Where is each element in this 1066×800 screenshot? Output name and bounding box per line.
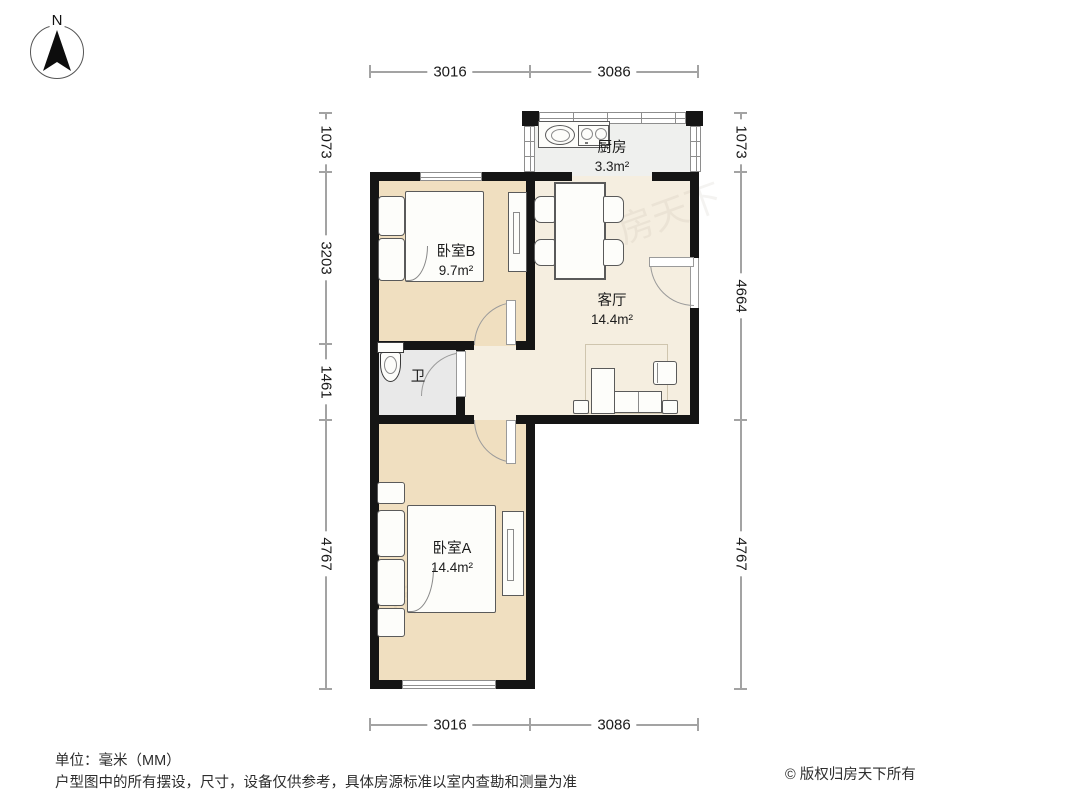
bedroom-a-door-leaf bbox=[506, 420, 516, 464]
kitchen-window bbox=[524, 126, 535, 172]
dim-label: 4767 bbox=[318, 531, 335, 576]
dim-tick bbox=[734, 112, 747, 114]
dim-label: 3203 bbox=[318, 235, 335, 280]
armchair bbox=[653, 361, 677, 385]
toilet-seat bbox=[384, 356, 397, 374]
floorplan-canvas: N 房天下 房天下 bbox=[0, 0, 1066, 800]
room-area: 9.7m² bbox=[406, 262, 506, 280]
kitchen-window bbox=[690, 126, 701, 172]
dining-chair bbox=[603, 196, 624, 223]
room-name: 卧室B bbox=[406, 243, 506, 262]
wall-segment bbox=[526, 415, 535, 689]
dim-label: 3016 bbox=[427, 64, 472, 81]
wardrobe-a-door bbox=[507, 529, 514, 581]
dim-label: 4664 bbox=[733, 273, 750, 318]
sofa-seat bbox=[614, 391, 662, 413]
unit-note: 单位：毫米（MM） bbox=[55, 749, 181, 770]
bedroom-a-label: 卧室A 14.4m² bbox=[402, 540, 502, 576]
bedroom-b-window bbox=[420, 172, 482, 181]
bathroom-label: 卫 bbox=[404, 368, 432, 387]
dim-tick bbox=[529, 718, 531, 731]
side-table bbox=[662, 400, 678, 414]
dim-label: 3016 bbox=[427, 717, 472, 734]
dining-chair bbox=[534, 196, 555, 223]
pillow bbox=[378, 196, 405, 236]
pillow bbox=[377, 559, 405, 606]
wall-segment bbox=[456, 396, 465, 424]
dim-tick bbox=[734, 688, 747, 690]
dim-tick bbox=[369, 718, 371, 731]
wardrobe-b-door bbox=[513, 212, 520, 254]
compass-north-label: N bbox=[50, 12, 65, 29]
room-area: 14.4m² bbox=[562, 311, 662, 329]
room-name: 卧室A bbox=[402, 540, 502, 559]
dim-tick bbox=[734, 419, 747, 421]
nightstand bbox=[377, 608, 405, 637]
room-area: 3.3m² bbox=[562, 158, 662, 176]
living-room-label: 客厅 14.4m² bbox=[562, 292, 662, 328]
dim-tick bbox=[697, 718, 699, 731]
dim-tick bbox=[529, 65, 531, 78]
dim-label: 1073 bbox=[733, 119, 750, 164]
side-table bbox=[573, 400, 589, 414]
compass: N bbox=[28, 10, 92, 84]
dim-line-right bbox=[740, 113, 742, 689]
dining-table bbox=[554, 182, 606, 280]
dim-label: 1073 bbox=[318, 119, 335, 164]
hallway-floor bbox=[456, 346, 534, 420]
dim-tick bbox=[319, 419, 332, 421]
dim-label: 1461 bbox=[318, 359, 335, 404]
room-name: 卫 bbox=[404, 368, 432, 387]
dim-tick bbox=[697, 65, 699, 78]
room-area: 14.4m² bbox=[402, 559, 502, 577]
nightstand bbox=[377, 482, 405, 504]
dim-tick bbox=[319, 343, 332, 345]
sofa-chaise bbox=[591, 368, 615, 414]
disclaimer: 户型图中的所有摆设，尺寸，设备仅供参考，具体房源标准以室内查勘和测量为准 bbox=[55, 771, 577, 792]
dim-tick bbox=[734, 171, 747, 173]
entry-door-leaf bbox=[649, 257, 694, 267]
dining-chair bbox=[603, 239, 624, 266]
north-arrow-icon bbox=[30, 25, 84, 79]
kitchen-label: 厨房 3.3m² bbox=[562, 139, 662, 175]
bathroom-door-leaf bbox=[456, 351, 466, 397]
corner-column bbox=[686, 111, 703, 126]
wall-segment bbox=[690, 308, 699, 424]
dim-line-bottom bbox=[370, 724, 699, 726]
dim-line-top bbox=[370, 71, 699, 73]
bedroom-a-window bbox=[402, 680, 496, 689]
dining-chair bbox=[534, 239, 555, 266]
pillow bbox=[378, 238, 405, 281]
dim-label: 3086 bbox=[591, 64, 636, 81]
wall-segment bbox=[516, 415, 699, 424]
room-name: 客厅 bbox=[562, 292, 662, 311]
bedroom-b-door-leaf bbox=[506, 300, 516, 345]
dim-tick bbox=[319, 171, 332, 173]
bedroom-b-label: 卧室B 9.7m² bbox=[406, 243, 506, 279]
pillow bbox=[377, 510, 405, 557]
corner-column bbox=[522, 111, 539, 126]
dim-tick bbox=[319, 688, 332, 690]
dim-tick bbox=[369, 65, 371, 78]
room-name: 厨房 bbox=[562, 139, 662, 158]
copyright: © 版权归房天下所有 bbox=[785, 763, 916, 784]
wall-segment bbox=[690, 172, 699, 258]
dim-label: 3086 bbox=[591, 717, 636, 734]
dim-label: 4767 bbox=[733, 531, 750, 576]
dim-tick bbox=[319, 112, 332, 114]
